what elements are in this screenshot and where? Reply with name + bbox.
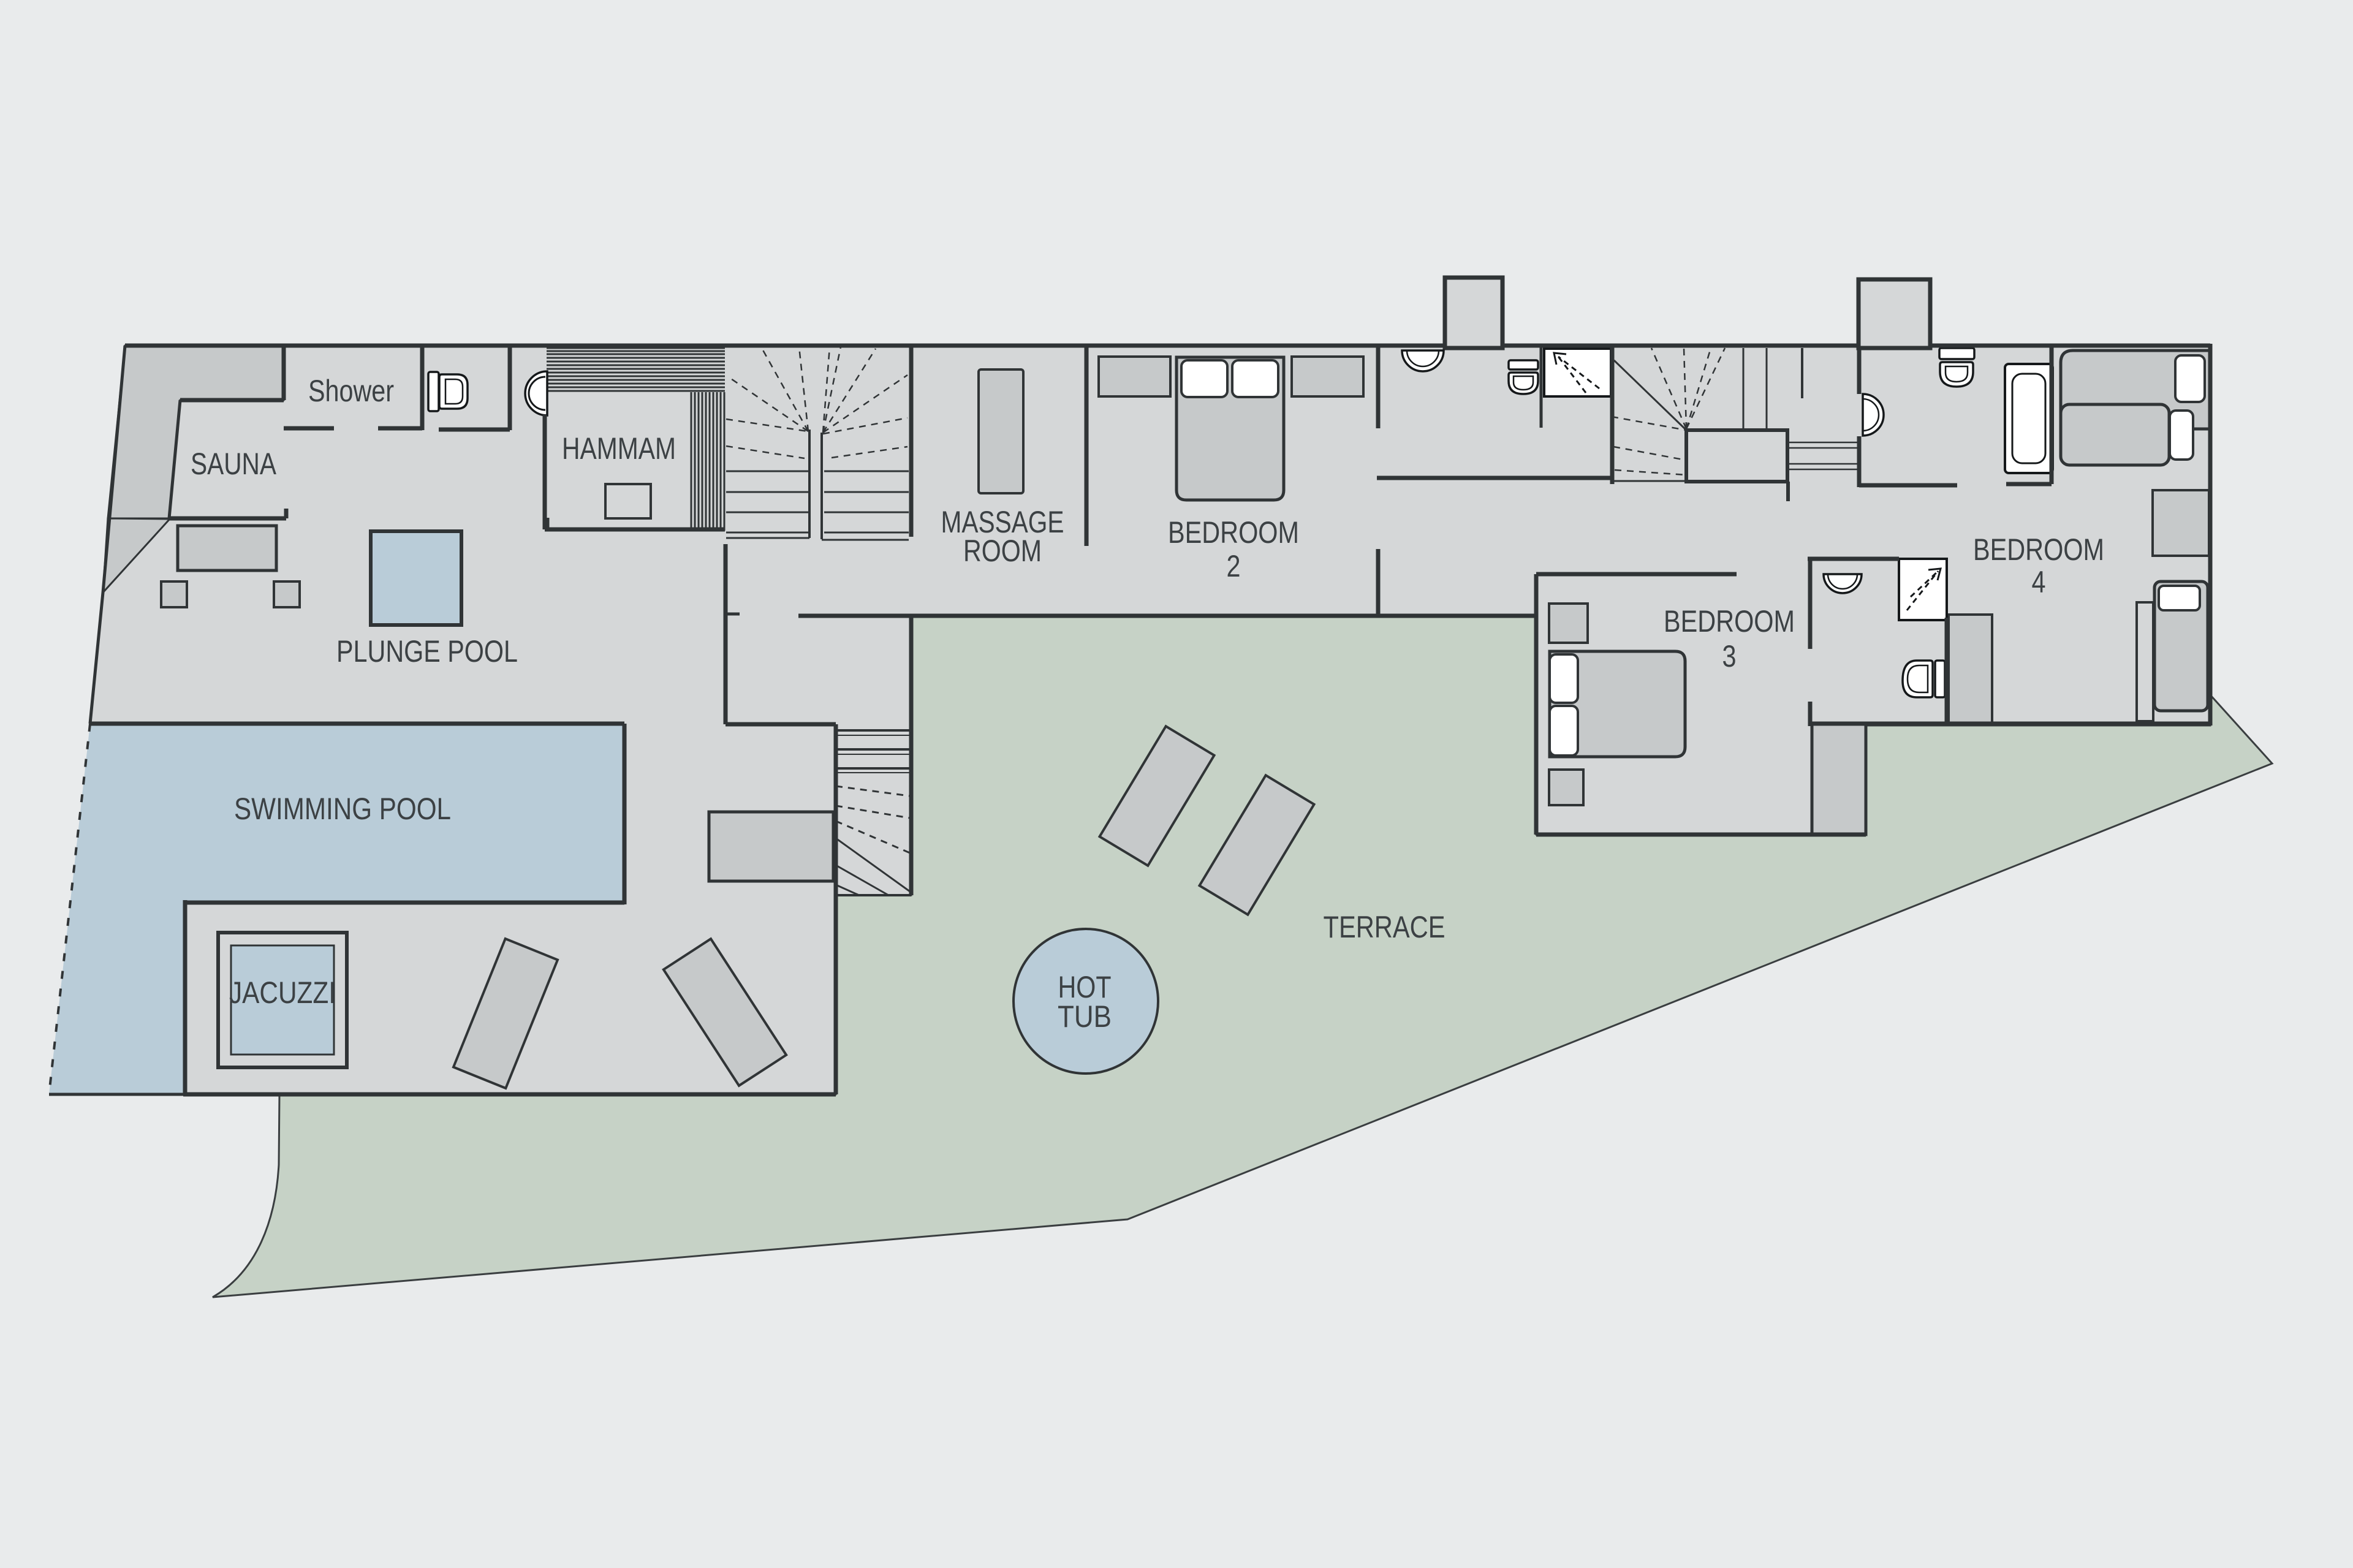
svg-text:2: 2	[1227, 549, 1241, 583]
svg-text:BEDROOM: BEDROOM	[1168, 515, 1299, 550]
svg-text:ROOM: ROOM	[963, 534, 1042, 568]
svg-text:3: 3	[1722, 639, 1737, 673]
svg-text:JACUZZI: JACUZZI	[229, 975, 336, 1010]
svg-text:TUB: TUB	[1058, 999, 1112, 1034]
svg-text:HAMMAM: HAMMAM	[562, 431, 676, 466]
svg-text:BEDROOM: BEDROOM	[1973, 532, 2104, 567]
svg-text:BEDROOM: BEDROOM	[1664, 604, 1795, 638]
svg-text:SAUNA: SAUNA	[191, 447, 277, 481]
svg-text:4: 4	[2032, 565, 2046, 599]
svg-text:PLUNGE POOL: PLUNGE POOL	[336, 634, 518, 668]
svg-text:TERRACE: TERRACE	[1324, 910, 1446, 944]
svg-text:SWIMMING POOL: SWIMMING POOL	[234, 792, 451, 826]
svg-text:Shower: Shower	[308, 374, 394, 408]
